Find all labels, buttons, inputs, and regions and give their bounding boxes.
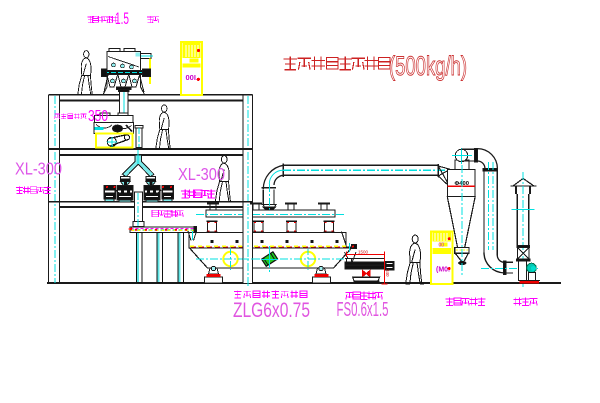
svg-text:00: 00 <box>439 243 445 249</box>
svg-text:00I.: 00I. <box>186 73 199 82</box>
svg-text:FS0.6x1.5: FS0.6x1.5 <box>337 299 389 321</box>
svg-text:(M0.: (M0. <box>436 267 450 274</box>
svg-text:ZLG6x0.75: ZLG6x0.75 <box>233 299 310 322</box>
svg-text:1.5: 1.5 <box>115 9 129 28</box>
svg-text:(500kg/h): (500kg/h) <box>389 51 467 81</box>
svg-text:340: 340 <box>385 269 390 277</box>
svg-text:1500: 1500 <box>358 250 369 255</box>
svg-text:XL-300: XL-300 <box>15 159 62 179</box>
svg-text:350: 350 <box>88 108 108 125</box>
svg-text:XL-300: XL-300 <box>178 164 225 184</box>
